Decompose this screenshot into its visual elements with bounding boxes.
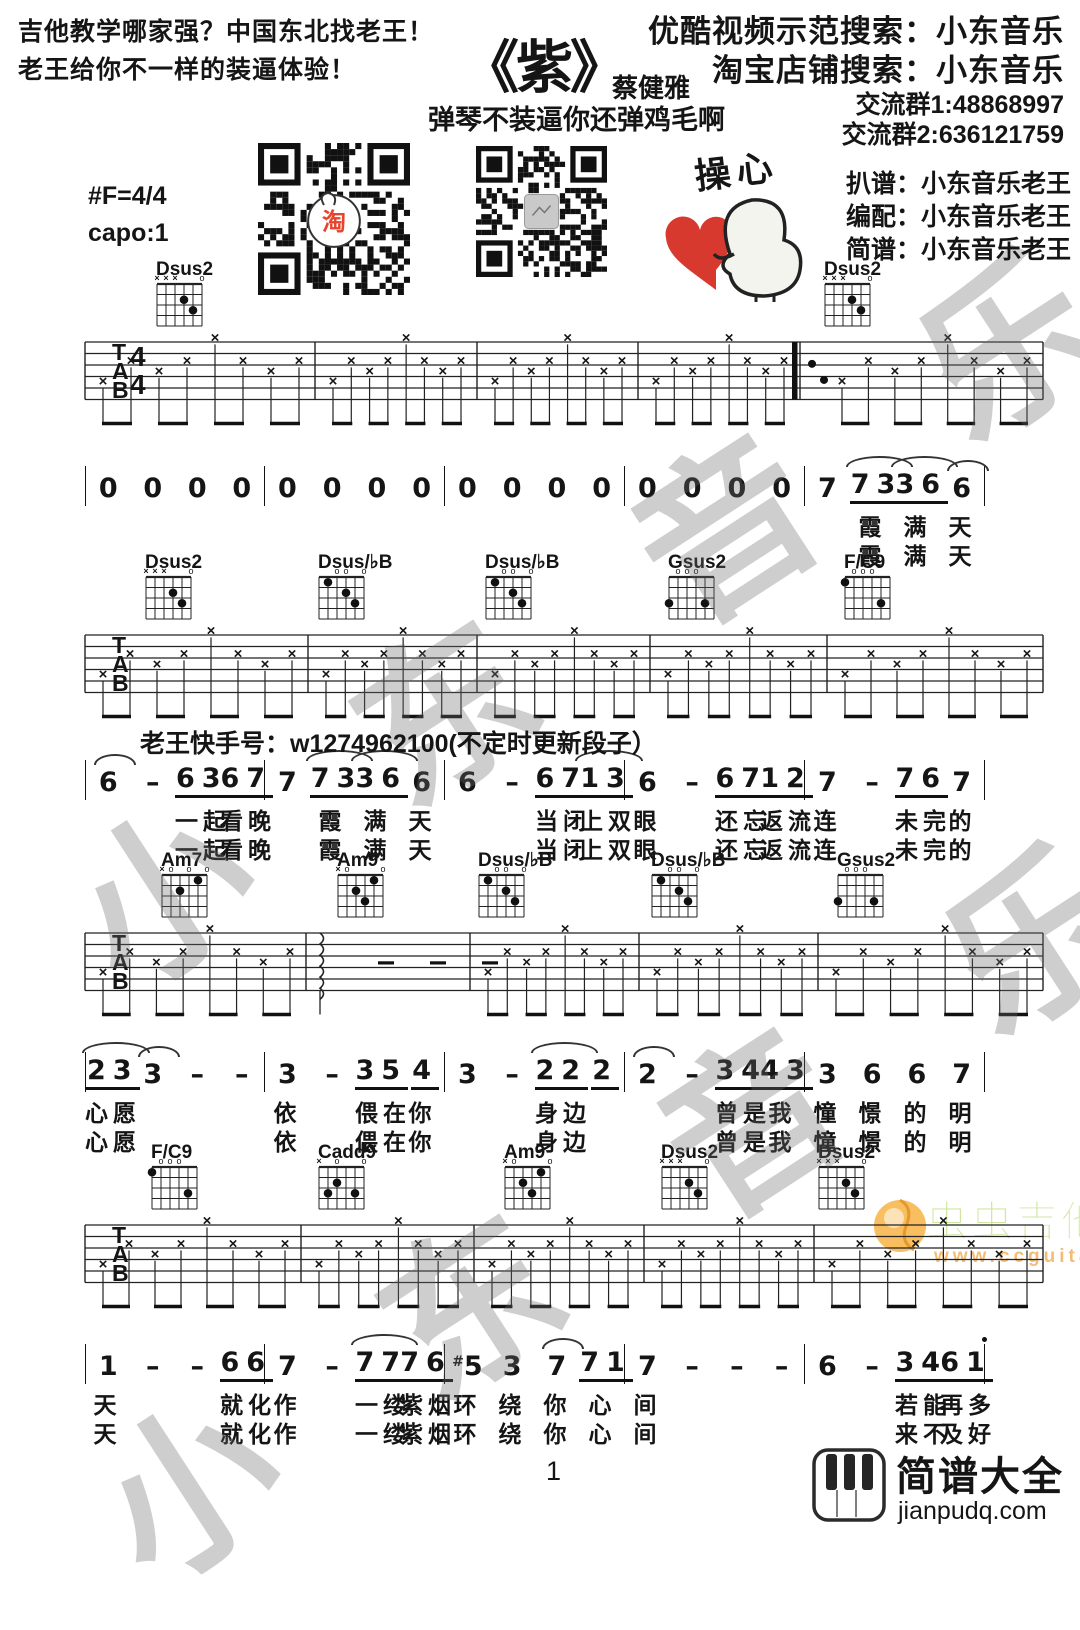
svg-text:o: o (853, 864, 858, 874)
svg-text:×: × (911, 1235, 920, 1252)
jianpu-line-3: 233––心愿心愿3–354依偎在你依偎在你3–222身边身边2–3443曾是我… (85, 1052, 985, 1150)
svg-text:×: × (153, 656, 162, 673)
svg-text:×: × (322, 666, 331, 683)
svg-text:o: o (344, 864, 349, 874)
svg-text:o: o (862, 864, 867, 874)
lyrics-row: 天就化 (85, 1415, 265, 1442)
svg-text:×: × (825, 1156, 830, 1166)
svg-text:×: × (864, 352, 873, 369)
svg-text:×: × (893, 656, 902, 673)
promo-block: 优酷视频示范搜索：小东音乐 淘宝店铺搜索：小东音乐 交流群1:48868997 … (648, 12, 1064, 150)
svg-text:×: × (735, 920, 744, 937)
svg-text:×: × (883, 1246, 892, 1263)
svg-text:×: × (179, 943, 188, 960)
taobao-search-text: 淘宝店铺搜索：小东音乐 (648, 51, 1064, 90)
svg-text:×: × (794, 1235, 803, 1252)
svg-text:×: × (967, 1235, 976, 1252)
svg-text:×: × (798, 943, 807, 960)
svg-text:×: × (234, 645, 243, 662)
svg-text:×: × (502, 1156, 507, 1166)
svg-text:×: × (828, 1256, 837, 1273)
svg-text:×: × (745, 622, 754, 639)
svg-text:×: × (996, 363, 1005, 380)
lyrics-row (85, 537, 265, 564)
tab-system-2: TAB×××××××××××××××××××××××××××××××××××××… (0, 555, 1080, 740)
svg-text:×: × (890, 363, 899, 380)
svg-text:×: × (259, 954, 268, 971)
svg-text:×: × (971, 645, 980, 662)
svg-text:×: × (180, 645, 189, 662)
jianpu-measure: 6–6367一起看晚一起看晚 (85, 760, 265, 858)
jianpu-line-4: 1––66天就化天就化7–7776作一缕紫烟作一缕紫烟#53771环绕你心环绕你… (85, 1344, 985, 1442)
capo-setting: capo:1 (88, 215, 169, 252)
svg-text:×: × (541, 943, 550, 960)
lyrics-row: 霞满天 (805, 537, 985, 564)
svg-text:×: × (774, 1246, 783, 1263)
svg-text:×: × (943, 329, 952, 346)
svg-text:×: × (203, 1212, 212, 1229)
svg-text:×: × (99, 1256, 108, 1273)
svg-text:×: × (624, 1235, 633, 1252)
svg-text:×: × (834, 1156, 839, 1166)
lyrics-row (265, 537, 445, 564)
jianpu-measure: 6–6712眼还忘返流眼还忘返流 (625, 760, 805, 858)
svg-text:×: × (267, 363, 276, 380)
jianpu-measure: 2–3443曾是我曾是我 (625, 1052, 805, 1150)
lyrics-row: 曾是我 (625, 1123, 805, 1150)
svg-text:×: × (491, 373, 500, 390)
svg-text:×: × (673, 943, 682, 960)
svg-text:×: × (706, 352, 715, 369)
svg-text:jianpudq.com: jianpudq.com (897, 1497, 1047, 1525)
svg-text:×: × (239, 352, 248, 369)
lyrics-row: 心愿 (85, 1094, 265, 1121)
song-title: 《紫》 (462, 22, 624, 104)
lyrics-row: 环绕你心 (445, 1415, 625, 1442)
svg-text:×: × (152, 954, 161, 971)
svg-text:×: × (618, 352, 627, 369)
svg-text:×: × (354, 1246, 363, 1263)
svg-text:×: × (816, 1156, 821, 1166)
svg-text:×: × (143, 566, 148, 576)
svg-text:×: × (434, 1246, 443, 1263)
svg-text:×: × (286, 943, 295, 960)
svg-text:o: o (511, 1156, 516, 1166)
svg-text:o: o (521, 864, 526, 874)
svg-text:×: × (599, 363, 608, 380)
svg-text:o: o (343, 566, 348, 576)
svg-text:×: × (360, 656, 369, 673)
jianpu-measure: 233––心愿心愿 (85, 1052, 265, 1150)
tab-system-3: TAB××××××××××××××××××××××××××××××××Am7×o… (0, 853, 1080, 1038)
lyrics-row: 霞满天 (265, 802, 445, 829)
svg-text:×: × (766, 645, 775, 662)
svg-text:o: o (861, 1156, 866, 1166)
svg-text:×: × (570, 622, 579, 639)
svg-text:o: o (867, 273, 872, 283)
svg-text:×: × (668, 1156, 673, 1166)
lyrics-row (625, 537, 805, 564)
svg-text:o: o (199, 273, 204, 283)
svg-text:o: o (168, 864, 173, 874)
svg-text:×: × (859, 943, 868, 960)
sheet-music-page: { "header": { "slogan_line1": "吉他教学哪家强？中… (0, 0, 1080, 1528)
svg-text:×: × (261, 656, 270, 673)
svg-text:o: o (501, 566, 506, 576)
svg-text:×: × (99, 373, 108, 390)
jianpudq-logo: 简谱大全jianpudq.com (812, 1448, 1080, 1528)
lyrics-row: 环绕你心 (445, 1386, 625, 1413)
svg-text:×: × (743, 352, 752, 369)
svg-text:×: × (507, 1235, 516, 1252)
svg-text:×: × (658, 1256, 667, 1273)
lyrics-row (445, 508, 625, 535)
svg-text:×: × (550, 645, 559, 662)
svg-text:淘: 淘 (322, 208, 346, 236)
svg-text:×: × (716, 1235, 725, 1252)
lyrics-row: 天就化 (85, 1386, 265, 1413)
svg-text:×: × (585, 1235, 594, 1252)
svg-text:×: × (619, 943, 628, 960)
svg-text:×: × (919, 645, 928, 662)
svg-text:×: × (659, 1156, 664, 1166)
svg-text:×: × (855, 1235, 864, 1252)
svg-text:o: o (380, 864, 385, 874)
svg-text:×: × (484, 964, 493, 981)
svg-text:×: × (886, 954, 895, 971)
svg-text:×: × (756, 943, 765, 960)
svg-text:×: × (761, 363, 770, 380)
jianpu-measure: #53771环绕你心环绕你心 (445, 1344, 625, 1442)
svg-text:×: × (563, 329, 572, 346)
svg-text:o: o (334, 566, 339, 576)
svg-text:×: × (545, 352, 554, 369)
svg-text:×: × (939, 1212, 948, 1229)
svg-text:×: × (402, 329, 411, 346)
svg-text:×: × (653, 964, 662, 981)
svg-text:×: × (154, 273, 159, 283)
svg-text:×: × (807, 645, 816, 662)
svg-text:×: × (281, 1235, 290, 1252)
qr-code-taobao: 淘 (258, 143, 410, 295)
svg-text:×: × (581, 352, 590, 369)
svg-text:×: × (664, 666, 673, 683)
svg-text:o: o (361, 1156, 366, 1166)
slogan-line-1: 吉他教学哪家强？中国东北找老王！ (18, 12, 434, 48)
kuaishou-note: 老王快手号：w1274962100(不定时更新段子） (140, 724, 657, 760)
tab-system-4: TAB×××××××××××××××××××××××××××××××××××××… (0, 1145, 1080, 1330)
svg-text:×: × (670, 352, 679, 369)
svg-text:B: B (112, 968, 129, 994)
svg-text:×: × (316, 1156, 321, 1166)
svg-text:o: o (694, 864, 699, 874)
lyrics-row: 连未完的 (805, 802, 985, 829)
svg-text:×: × (341, 645, 350, 662)
svg-text:×: × (207, 622, 216, 639)
jianpu-measure: 3–354依偎在你依偎在你 (265, 1052, 445, 1150)
svg-text:×: × (565, 1212, 574, 1229)
jianpu-measure: 773366霞满天霞满天 (265, 760, 445, 858)
jianpu-measure: 7–––间间 (625, 1344, 805, 1442)
svg-text:×: × (561, 920, 570, 937)
lyrics-row (265, 508, 445, 535)
svg-text:×: × (841, 666, 850, 683)
lyrics-row: 来不及好 (805, 1415, 985, 1442)
svg-text:×: × (374, 1235, 383, 1252)
svg-text:×: × (183, 352, 192, 369)
credit-transcribe: 扒谱：小东音乐老王 (846, 168, 1071, 201)
svg-text:×: × (677, 1156, 682, 1166)
svg-text:×: × (522, 954, 531, 971)
jianpu-measure: 0000 (625, 466, 805, 564)
lyrics-row: 间 (625, 1415, 805, 1442)
svg-text:×: × (913, 943, 922, 960)
svg-text:×: × (205, 920, 214, 937)
lyrics-row: 曾是我 (625, 1094, 805, 1121)
lyrics-row: 一起看晚 (85, 831, 265, 858)
svg-text:×: × (580, 943, 589, 960)
svg-text:o: o (667, 864, 672, 874)
svg-text:×: × (399, 622, 408, 639)
lyrics-row: 憧憬的明 (805, 1094, 985, 1121)
svg-text:×: × (546, 1235, 555, 1252)
svg-text:×: × (694, 954, 703, 971)
credits-block: 扒谱：小东音乐老王 编配：小东音乐老王 简谱：小东音乐老王 (846, 168, 1071, 267)
svg-text:×: × (172, 273, 177, 283)
lyrics-row: 身边 (445, 1123, 625, 1150)
svg-text:×: × (125, 943, 134, 960)
svg-text:×: × (527, 363, 536, 380)
svg-text:×: × (945, 622, 954, 639)
svg-text:操心: 操心 (692, 146, 780, 197)
svg-text:×: × (530, 656, 539, 673)
svg-text:×: × (163, 273, 168, 283)
jianpu-measure: 773366霞满天霞满天 (805, 466, 985, 564)
svg-text:×: × (917, 352, 926, 369)
jianpu-line-2: 6–6367一起看晚一起看晚773366霞满天霞满天6–6713当闭上双当闭上双… (85, 760, 985, 858)
page-number: 1 (546, 1456, 561, 1487)
svg-text:o: o (176, 1156, 181, 1166)
svg-text:×: × (677, 1235, 686, 1252)
credit-jianpu: 简谱：小东音乐老王 (846, 234, 1071, 267)
svg-text:×: × (159, 864, 164, 874)
svg-text:×: × (335, 864, 340, 874)
svg-text:×: × (347, 352, 356, 369)
svg-text:o: o (334, 1156, 339, 1166)
svg-text:4: 4 (130, 369, 146, 400)
lyrics-row: 霞满天 (805, 508, 985, 535)
credit-arrange: 编配：小东音乐老王 (846, 201, 1071, 234)
svg-text:o: o (684, 566, 689, 576)
jianpu-measure: 3–222身边身边 (445, 1052, 625, 1150)
svg-text:o: o (503, 864, 508, 874)
svg-text:×: × (151, 1246, 160, 1263)
lyrics-row: 眼还忘返流 (625, 831, 805, 858)
svg-text:×: × (457, 645, 466, 662)
svg-text:o: o (494, 864, 499, 874)
svg-text:×: × (488, 1256, 497, 1273)
lyrics-row: 依偎在你 (265, 1094, 445, 1121)
lyrics-row: 作一缕紫烟 (265, 1386, 445, 1413)
svg-text:×: × (684, 645, 693, 662)
svg-text:o: o (844, 864, 849, 874)
svg-text:×: × (968, 943, 977, 960)
svg-text:o: o (167, 1156, 172, 1166)
svg-text:×: × (652, 373, 661, 390)
svg-text:×: × (610, 656, 619, 673)
jianpu-measure: 6–6713当闭上双当闭上双 (445, 760, 625, 858)
svg-text:×: × (780, 352, 789, 369)
jianpu-line-1: 0000000000000000773366霞满天霞满天 (85, 466, 985, 564)
svg-text:×: × (491, 666, 500, 683)
lyrics-row: 憧憬的明 (805, 1123, 985, 1150)
svg-text:×: × (379, 645, 388, 662)
svg-text:×: × (970, 352, 979, 369)
svg-text:×: × (161, 566, 166, 576)
svg-text:o: o (547, 1156, 552, 1166)
tab-system-1: TAB44×××××××××××××××××××××××××××××××××××… (0, 262, 1080, 447)
svg-text:×: × (127, 352, 136, 369)
lyrics-row: 心愿 (85, 1123, 265, 1150)
svg-text:×: × (383, 352, 392, 369)
svg-text:×: × (155, 363, 164, 380)
svg-text:×: × (688, 363, 697, 380)
qq-group2-text: 交流群2:636121759 (648, 120, 1064, 150)
svg-text:×: × (630, 645, 639, 662)
svg-text:×: × (995, 954, 1004, 971)
svg-text:×: × (704, 656, 713, 673)
svg-text:×: × (232, 943, 241, 960)
svg-text:×: × (1023, 1235, 1032, 1252)
svg-text:×: × (329, 373, 338, 390)
svg-text:×: × (229, 1235, 238, 1252)
svg-text:×: × (438, 363, 447, 380)
jianpu-measure: 7–7776作一缕紫烟作一缕紫烟 (265, 1344, 445, 1442)
svg-text:×: × (696, 1246, 705, 1263)
svg-text:×: × (735, 1212, 744, 1229)
svg-text:×: × (604, 1246, 613, 1263)
key-signature: #F=4/4 (88, 178, 169, 215)
svg-text:o: o (158, 1156, 163, 1166)
svg-text:×: × (315, 1256, 324, 1273)
svg-text:×: × (1023, 943, 1032, 960)
svg-text:×: × (725, 329, 734, 346)
svg-text:×: × (126, 645, 135, 662)
svg-text:×: × (867, 645, 876, 662)
svg-text:×: × (832, 964, 841, 981)
slogan-line-2: 老王给你不一样的装逼体验！ (18, 50, 356, 86)
svg-text:×: × (941, 920, 950, 937)
svg-text:B: B (112, 670, 129, 696)
svg-text:×: × (99, 666, 108, 683)
jianpu-measure: 7–767连未完的连未完的 (805, 760, 985, 858)
lyrics-row: 依偎在你 (265, 1123, 445, 1150)
lyrics-row (625, 508, 805, 535)
svg-text:×: × (255, 1246, 264, 1263)
youku-search-text: 优酷视频示范搜索：小东音乐 (648, 12, 1064, 51)
svg-text:×: × (420, 352, 429, 369)
svg-text:B: B (112, 1260, 129, 1286)
jianpu-measure: 0000 (85, 466, 265, 564)
svg-text:o: o (204, 864, 209, 874)
svg-text:×: × (177, 1235, 186, 1252)
svg-text:×: × (715, 943, 724, 960)
svg-text:o: o (188, 566, 193, 576)
svg-text:×: × (334, 1235, 343, 1252)
lyrics-row: 眼还忘返流 (625, 802, 805, 829)
svg-text:×: × (454, 1235, 463, 1252)
svg-text:简谱大全: 简谱大全 (896, 1454, 1064, 1499)
svg-text:×: × (152, 566, 157, 576)
svg-text:×: × (414, 1235, 423, 1252)
lyrics-row: 连未完的 (805, 831, 985, 858)
svg-text:×: × (211, 329, 220, 346)
svg-text:×: × (125, 1235, 134, 1252)
qq-group1-text: 交流群1:48868997 (648, 90, 1064, 120)
lyrics-row: 霞满天 (265, 831, 445, 858)
svg-text:×: × (997, 656, 1006, 673)
svg-text:×: × (599, 954, 608, 971)
lyrics-row: 若能再多 (805, 1386, 985, 1413)
svg-text:o: o (704, 1156, 709, 1166)
jianpu-measure: 1––66天就化天就化 (85, 1344, 265, 1442)
svg-text:o: o (361, 566, 366, 576)
svg-text:×: × (437, 656, 446, 673)
svg-text:×: × (590, 645, 599, 662)
lyrics-row (445, 537, 625, 564)
lyrics-row (85, 508, 265, 535)
svg-text:o: o (851, 566, 856, 576)
svg-text:×: × (295, 352, 304, 369)
svg-text:×: × (755, 1235, 764, 1252)
svg-text:×: × (995, 1246, 1004, 1263)
lyrics-row: 一起看晚 (85, 802, 265, 829)
svg-text:×: × (288, 645, 297, 662)
key-capo-block: #F=4/4 capo:1 (88, 178, 169, 252)
svg-text:×: × (509, 352, 518, 369)
svg-text:×: × (1023, 352, 1032, 369)
svg-text:×: × (725, 645, 734, 662)
svg-text:B: B (112, 377, 129, 403)
jianpu-measure: 0000 (265, 466, 445, 564)
svg-text:o: o (186, 864, 191, 874)
qr-code-weixin (476, 146, 607, 277)
svg-text:×: × (99, 964, 108, 981)
svg-text:o: o (676, 864, 681, 874)
caring-cartoon: 操心 (638, 142, 848, 302)
jianpu-measure: 0000 (445, 466, 625, 564)
lyrics-row: 作一缕紫烟 (265, 1415, 445, 1442)
svg-text:×: × (1023, 645, 1032, 662)
svg-text:×: × (510, 645, 519, 662)
lyrics-row: 间 (625, 1386, 805, 1413)
svg-text:o: o (528, 566, 533, 576)
svg-text:o: o (510, 566, 515, 576)
svg-text:×: × (418, 645, 427, 662)
lyrics-row: 身边 (445, 1094, 625, 1121)
svg-text:×: × (394, 1212, 403, 1229)
svg-text:×: × (838, 373, 847, 390)
svg-text:×: × (457, 352, 466, 369)
svg-text:×: × (365, 363, 374, 380)
jianpu-measure: 6–3461若能再多来不及好 (805, 1344, 985, 1442)
svg-text:o: o (675, 566, 680, 576)
jianpu-measure: 3667憧憬的明憧憬的明 (805, 1052, 985, 1150)
svg-text:×: × (503, 943, 512, 960)
svg-text:o: o (693, 566, 698, 576)
svg-text:×: × (777, 954, 786, 971)
lyrics-row: 当闭上双 (445, 802, 625, 829)
